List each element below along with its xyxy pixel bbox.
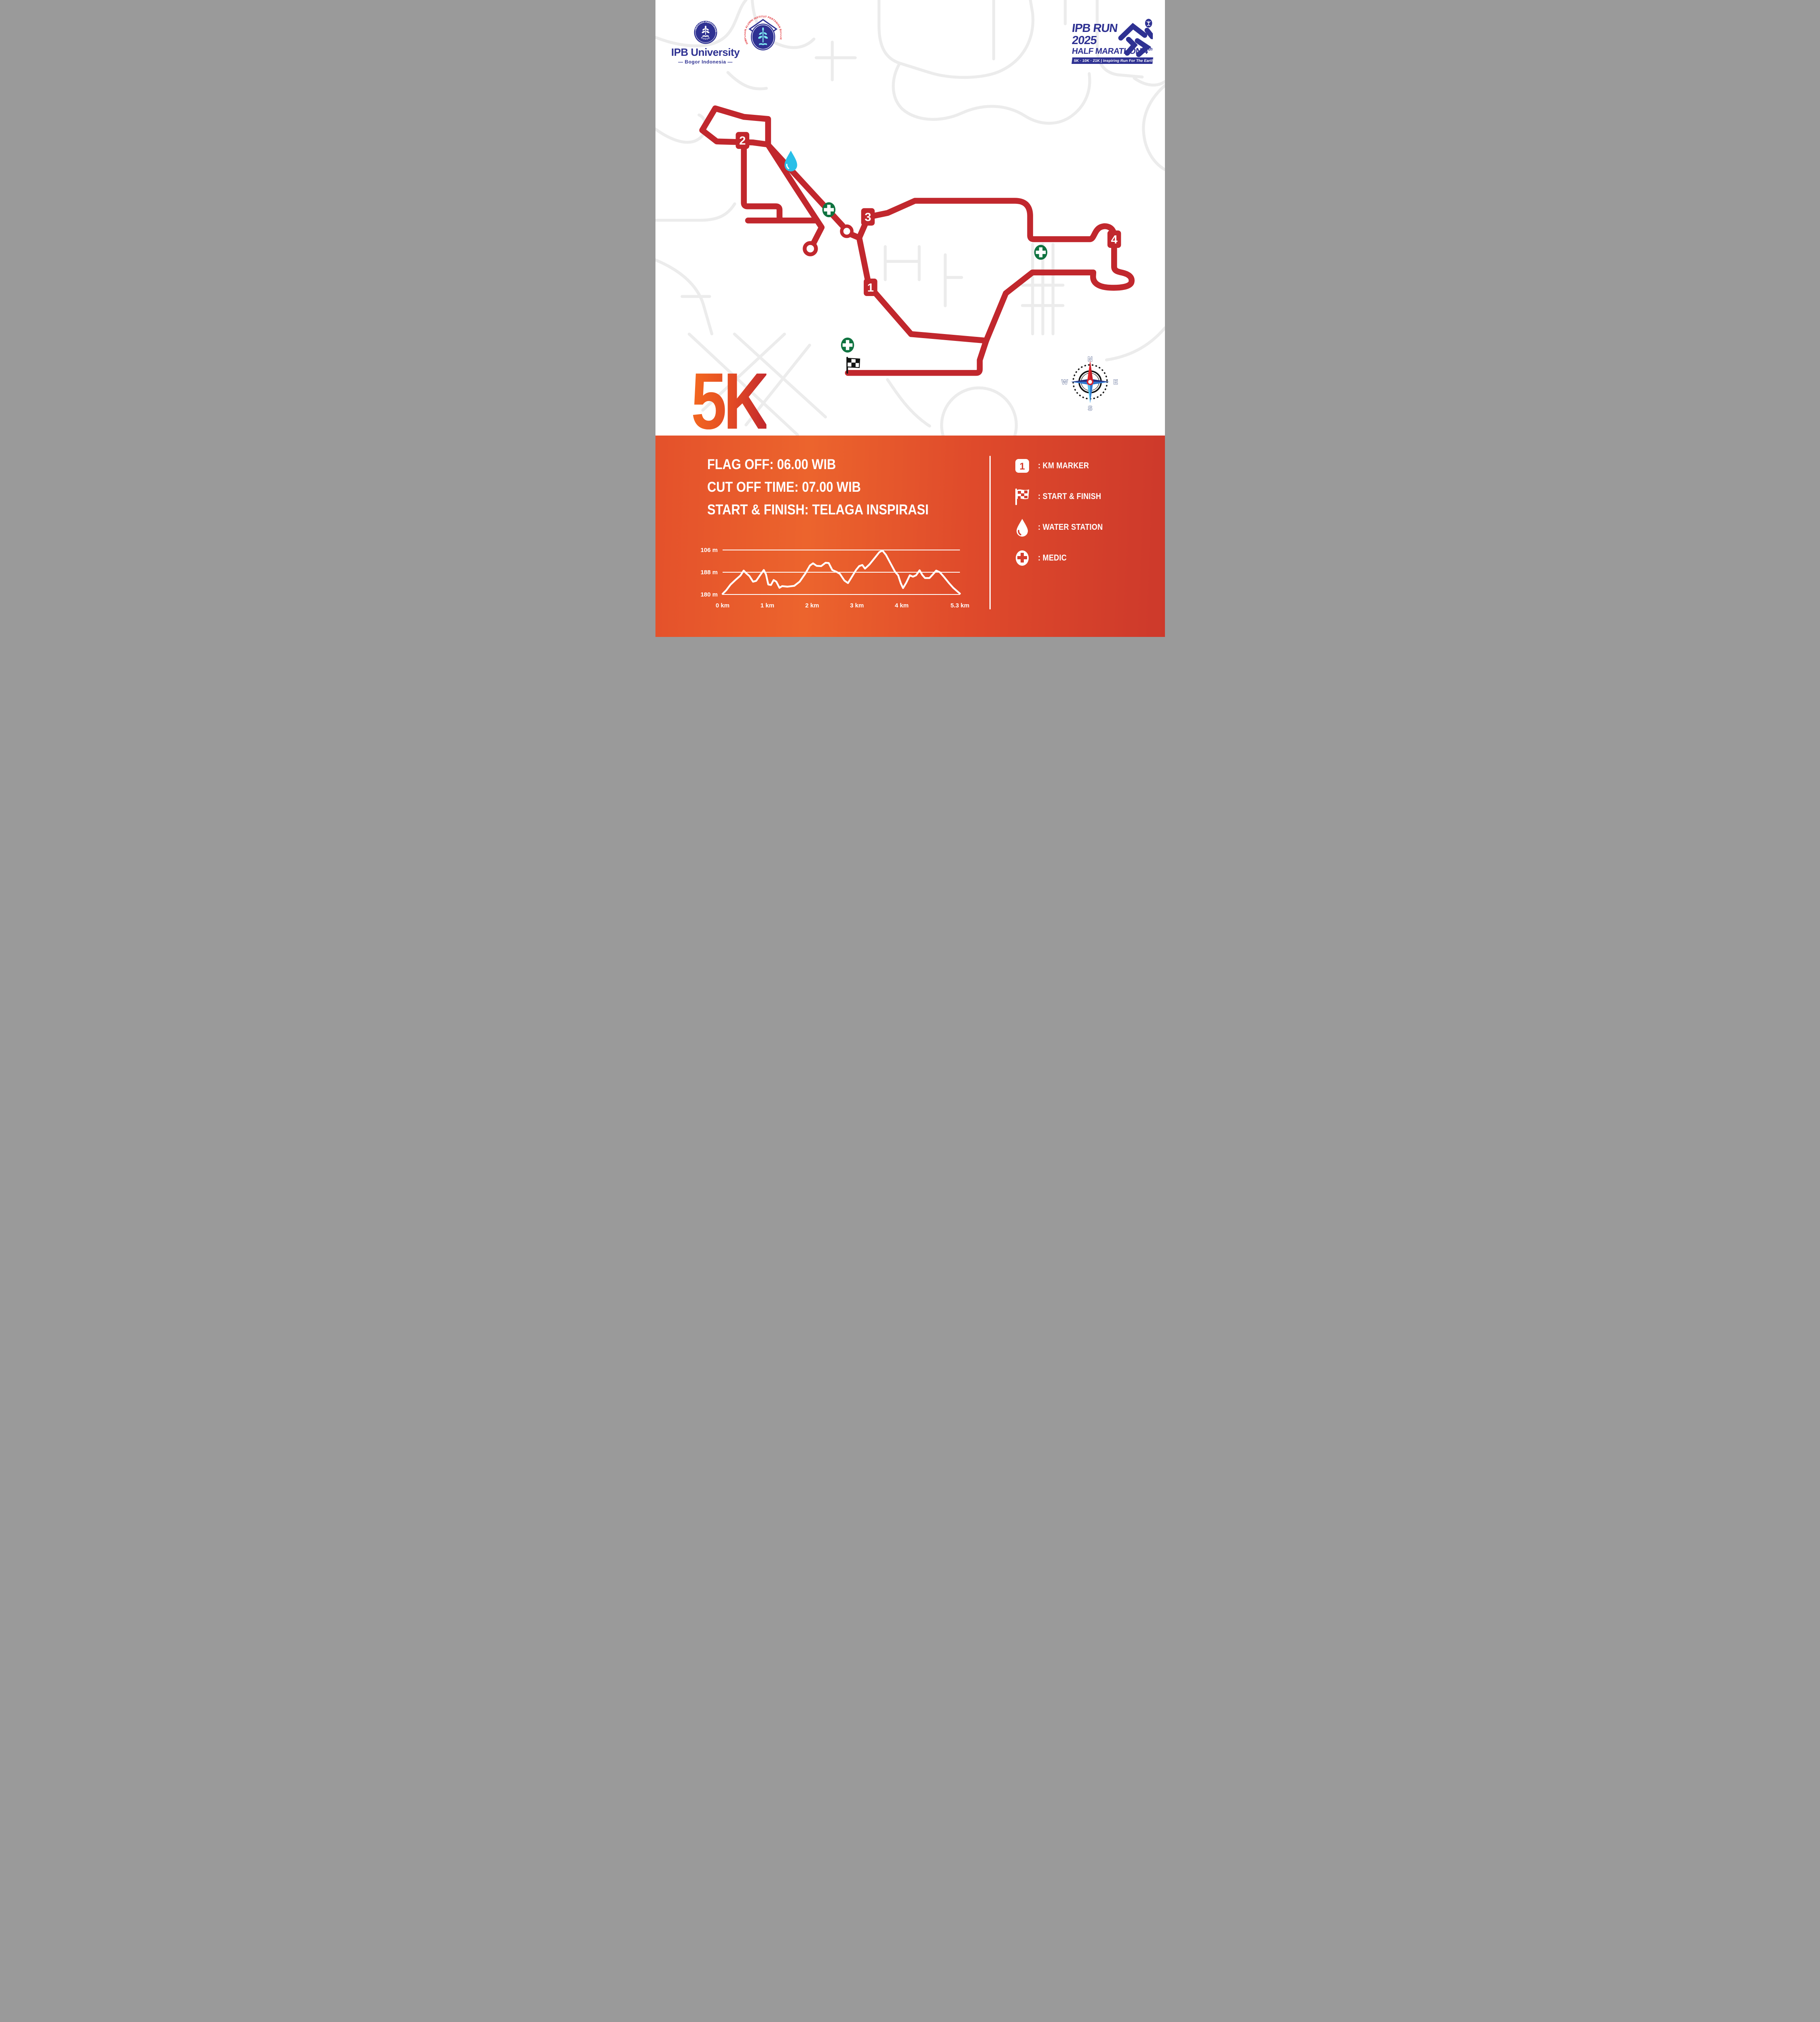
route-km4-loop — [986, 241, 1131, 341]
turnaround-circle — [804, 243, 816, 254]
legend: 1 : KM MARKER : START & FINISH — [1013, 457, 1113, 567]
svg-text:1: 1 — [1019, 461, 1025, 472]
event-title-line1: IPB RUN — [1071, 23, 1154, 35]
km-marker-2: 2 — [736, 132, 749, 149]
medic-icon — [841, 338, 854, 353]
chart-x-tick: 0 km — [715, 602, 729, 609]
km-marker-3: 3 — [861, 208, 875, 226]
legend-item-water-station: : WATER STATION — [1013, 518, 1113, 537]
legend-label: : KM MARKER — [1038, 461, 1089, 471]
km-marker-legend-icon: 1 — [1013, 459, 1032, 473]
chart-x-tick: 1 km — [760, 602, 774, 609]
route-5k — [702, 108, 1131, 373]
water-station-icon — [784, 150, 797, 171]
svg-text:1: 1 — [867, 281, 873, 294]
legend-item-medic: : MEDIC — [1013, 549, 1113, 567]
route-pentagon — [702, 108, 768, 144]
chart-x-tick: 4 km — [894, 602, 908, 609]
legend-label: : START & FINISH — [1038, 492, 1101, 501]
alumni-seal-icon: HIMPUNAN ALUMNI INSTITUT PERTANIAN BOGOR — [744, 15, 782, 54]
medic-icon — [1034, 245, 1047, 260]
chart-x-tick: 3 km — [850, 602, 864, 609]
svg-text:2: 2 — [739, 135, 746, 148]
compass-s: S — [1088, 405, 1092, 412]
medic-legend-icon — [1013, 549, 1032, 567]
svg-text:4: 4 — [1111, 233, 1118, 246]
route-junction-west — [911, 334, 986, 341]
legend-label: : MEDIC — [1038, 553, 1067, 563]
info-band: FLAG OFF: 06.00 WIB CUT OFF TIME: 07.00 … — [655, 436, 1165, 637]
ipb-name: IPB University — [663, 46, 748, 59]
compass-n: N — [1088, 355, 1093, 363]
chart-y-label: 188 m — [700, 569, 718, 576]
compass-rose: N E S W — [1061, 355, 1118, 412]
route-lollipop-stem — [813, 220, 821, 243]
chart-y-label: 180 m — [700, 591, 718, 598]
compass-w: W — [1061, 379, 1068, 386]
event-edition: 4th — [1143, 47, 1152, 56]
alumni-association-logo: HIMPUNAN ALUMNI INSTITUT PERTANIAN BOGOR — [744, 15, 782, 54]
chart-x-tick: 5.3 km — [950, 602, 969, 609]
legend-item-km-marker: 1 : KM MARKER — [1013, 457, 1113, 475]
route-km1-diagonal — [851, 235, 911, 334]
legend-item-start-finish: : START & FINISH — [1013, 487, 1113, 506]
route-bottom — [848, 341, 986, 373]
chart-x-tick: 2 km — [805, 602, 819, 609]
poster: 1 2 3 4 — [655, 0, 1165, 637]
legend-divider — [989, 456, 991, 609]
race-distance-label: 5K — [691, 361, 766, 441]
svg-text:3: 3 — [865, 211, 871, 224]
route-east-out — [859, 201, 1114, 239]
ipb-university-logo: INSTITUT PERTANIAN BOGOR IPB University … — [663, 20, 748, 65]
chart-y-label: 106 m — [700, 547, 718, 554]
km-marker-1: 1 — [864, 279, 877, 296]
checkered-flag-icon — [1013, 488, 1032, 505]
ipb-subtitle: — Bogor Indonesia — — [663, 59, 748, 65]
km-marker-4: 4 — [1107, 231, 1121, 248]
medic-icon — [822, 202, 835, 217]
legend-label: : WATER STATION — [1038, 522, 1103, 532]
water-drop-legend-icon — [1013, 518, 1032, 537]
event-title-line3: HALF MARATHON 4th — [1071, 47, 1153, 56]
event-logo: IPB RUN 2025 HALF MARATHON 4th 5K · 10K … — [1072, 23, 1153, 64]
ipb-seal-icon: INSTITUT PERTANIAN BOGOR — [693, 20, 718, 44]
medic-icons — [822, 202, 1047, 353]
event-title-line2: 2025 — [1071, 35, 1154, 47]
event-banner: 5K · 10K · 21K | Inspiring Run For The E… — [1072, 57, 1153, 64]
roundabout — [841, 226, 852, 236]
compass-e: E — [1113, 379, 1118, 386]
